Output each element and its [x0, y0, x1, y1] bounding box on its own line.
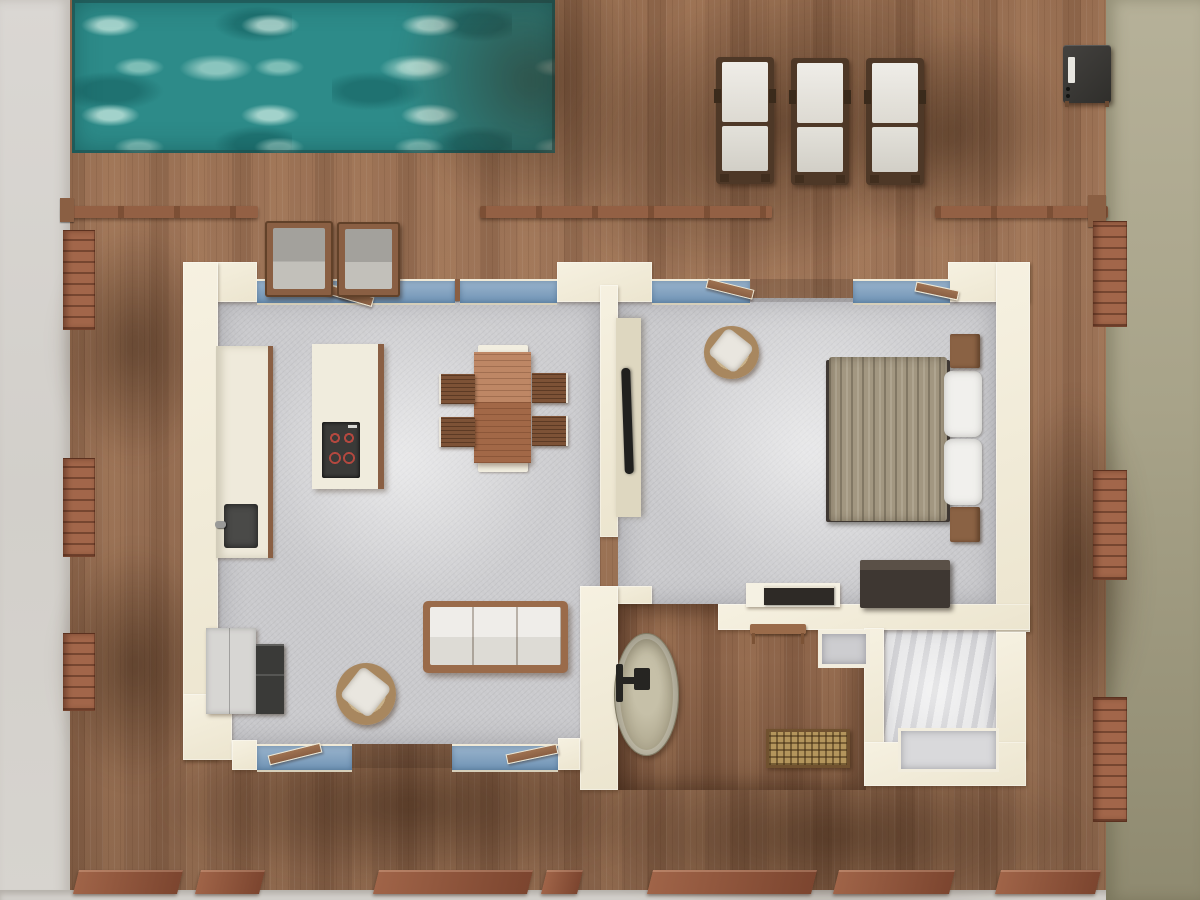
lounger-foot [870, 175, 879, 183]
wall-bottom-segment [558, 738, 580, 770]
grill-foot [1105, 101, 1109, 107]
tub-faucet-head [634, 668, 650, 690]
freestanding-bathtub [614, 633, 679, 756]
outdoor-armchair [265, 221, 333, 297]
lounger-foot [836, 175, 845, 183]
lounger-foot [761, 174, 770, 182]
lounger-arm [919, 90, 926, 104]
lounger-seat [872, 127, 918, 172]
dining-chair [532, 416, 568, 446]
wall-bathroom-left [580, 586, 618, 790]
lounger-foot [911, 175, 920, 183]
induction-cooktop [322, 422, 360, 478]
dining-chair [532, 373, 568, 403]
nightstand [950, 507, 980, 542]
kitchen-sink [224, 504, 258, 548]
wall-bottom-segment [232, 740, 257, 770]
lounger-backrest [872, 63, 918, 123]
deck-edge-board [73, 870, 183, 894]
dining-bench [478, 462, 528, 472]
lounger-foot [720, 174, 729, 182]
ground-left [0, 0, 70, 900]
lounger-seat [722, 126, 768, 171]
bed-pillow [944, 439, 982, 505]
dining-chair [439, 417, 475, 447]
lounger-arm [864, 90, 871, 104]
deck-edge-board [195, 870, 265, 894]
fridge [206, 628, 256, 714]
deck-stairs-left [63, 230, 95, 330]
lounger-arm [844, 90, 851, 104]
sliding-door-opening [750, 279, 853, 302]
grill-towel [1068, 57, 1075, 83]
nightstand [950, 334, 980, 368]
lounger-foot [795, 175, 804, 183]
deck-edge-board [995, 870, 1101, 894]
armchair-cushion [273, 228, 325, 289]
sun-lounger [791, 58, 849, 185]
dining-chair [439, 374, 475, 404]
lounger-seat [797, 127, 843, 172]
sun-lounger [866, 58, 924, 185]
sliding-door-opening [352, 744, 452, 768]
cooktop-control-strip [348, 425, 357, 428]
deck-edge-board [373, 870, 533, 894]
wicker-chair-cushion [339, 666, 392, 719]
deck-railing [935, 206, 1108, 218]
round-wicker-chair [704, 326, 759, 379]
deck-stairs-left [63, 458, 95, 557]
kitchen-faucet-icon [215, 521, 226, 528]
sofa [423, 601, 568, 673]
wall-right [996, 262, 1030, 632]
bed-blanket [829, 357, 947, 521]
lounger-backrest [797, 63, 843, 123]
deck-railing [62, 206, 258, 218]
wicker-chair-cushion [707, 327, 754, 374]
outdoor-armchair [337, 222, 400, 297]
desk-books [764, 586, 834, 605]
sofa-cushions [430, 607, 561, 665]
wall-closet-right [996, 632, 1026, 758]
dresser-chest [860, 560, 950, 608]
railing-post [60, 198, 74, 222]
deck-railing [480, 206, 772, 218]
bench-leg [801, 633, 804, 644]
bath-alcove [818, 630, 870, 668]
deck-stairs-right [1093, 697, 1127, 822]
desk-bench [750, 624, 806, 634]
lounger-arm [714, 89, 721, 103]
grill-knob [1066, 87, 1070, 91]
dining-table [474, 352, 531, 463]
deck-edge-board [833, 870, 955, 894]
deck-edge-board [541, 870, 583, 894]
bed-pillow [944, 371, 982, 437]
lounger-arm [769, 89, 776, 103]
lounger-arm [789, 90, 796, 104]
deck-stairs-right [1093, 470, 1127, 580]
rattan-bench [766, 729, 850, 768]
window-top-living-b [460, 279, 557, 305]
grill-foot [1065, 101, 1069, 107]
sun-lounger [716, 57, 774, 184]
closet-doorway [898, 728, 999, 772]
oven [256, 644, 284, 714]
deck-stairs-right [1093, 221, 1127, 327]
armchair-cushion [345, 229, 392, 289]
grill-knob [1066, 94, 1070, 98]
lounger-backrest [722, 62, 768, 122]
barbecue-grill [1063, 45, 1111, 103]
deck-edge-board [647, 870, 817, 894]
floor-plan-render [0, 0, 1200, 900]
swimming-pool [72, 0, 555, 153]
bench-leg [752, 633, 755, 644]
round-wicker-chair [336, 663, 396, 725]
deck-stairs-left [63, 633, 95, 711]
